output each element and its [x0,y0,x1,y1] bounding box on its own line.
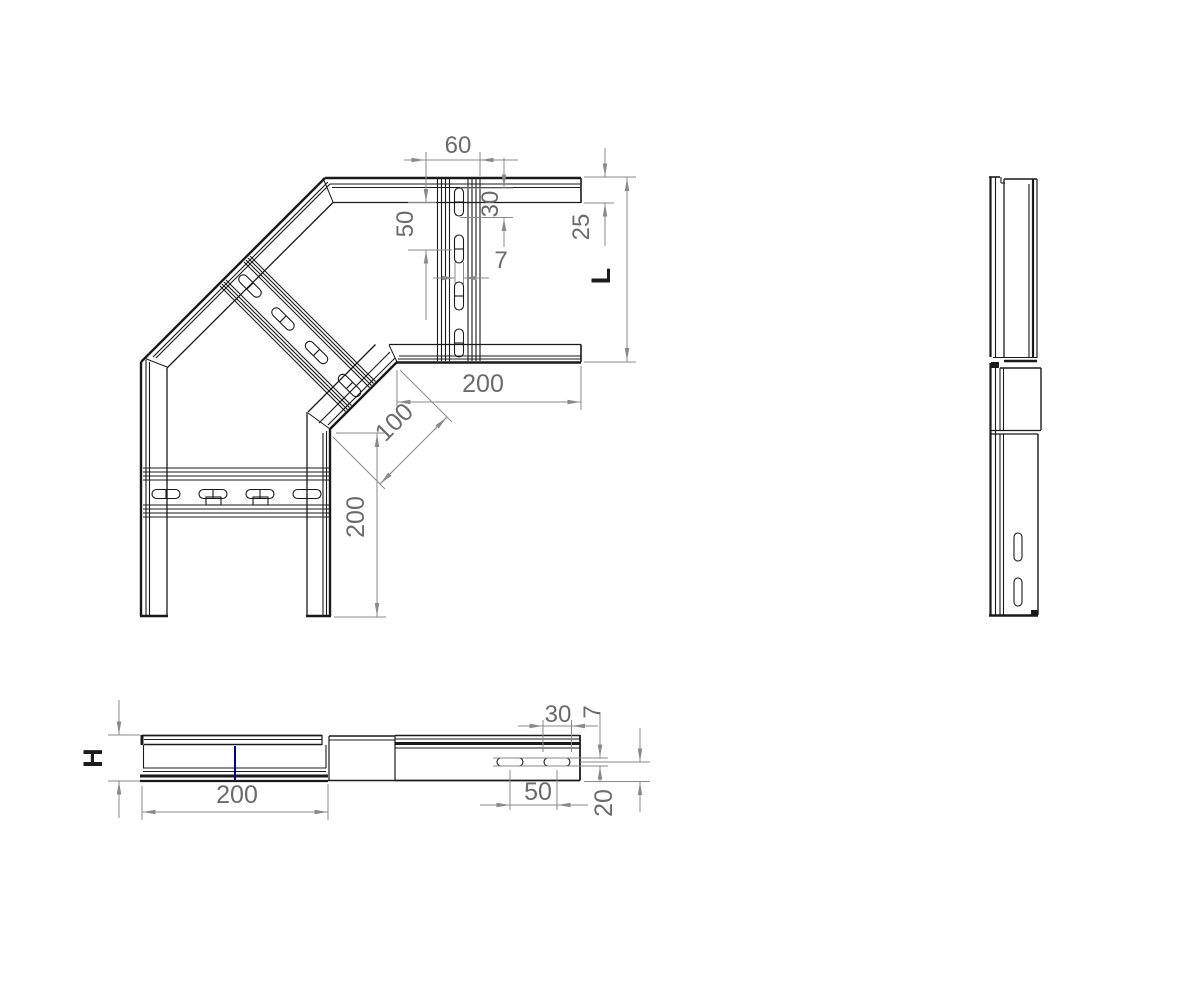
dim-label-section-length: 200 [216,781,258,809]
dim-label-overall-width: L [586,268,616,285]
cad-drawing: 60 25 L [0,0,1200,1000]
dim-label-bottom-slot-width: 7 [579,705,606,718]
plan-inner-rail [306,345,581,617]
bottom-slots [497,758,570,766]
dim-label-slot-length: 30 [477,191,504,218]
drawing-canvas: 60 25 L [0,0,1200,1000]
dim-label-bottom-slot-length: 30 [545,701,572,728]
dim-label-slot-width: 7 [494,247,507,274]
dim-label-flange-width: 25 [568,214,595,241]
plan-view: 60 25 L [140,132,636,617]
rung-slot [455,188,464,357]
bottom-dimensions: H 200 30 [78,700,650,820]
dim-label-arm-horizontal: 200 [462,370,504,398]
dim-label-arm-vertical: 200 [342,496,370,538]
dim-H [108,700,140,818]
dim-label-bottom-slot-pitch: 50 [524,778,552,806]
bottom-middle-section [328,736,395,781]
plan-rung-vertical-arm [143,468,329,517]
side-view [989,177,1041,616]
side-profile [989,177,1041,616]
dim-label-slot-offset: 20 [590,789,618,817]
side-slots [1014,533,1022,606]
rung-slot [152,490,321,506]
plan-rung-horizontal-arm [438,179,481,361]
plan-rung-diagonal-arm [220,256,376,412]
dim-label-height: H [78,748,108,768]
dim-label-slot-pitch: 50 [392,211,419,238]
dim-label-rung-width: 60 [445,132,472,159]
bottom-view: H 200 30 [78,700,650,820]
